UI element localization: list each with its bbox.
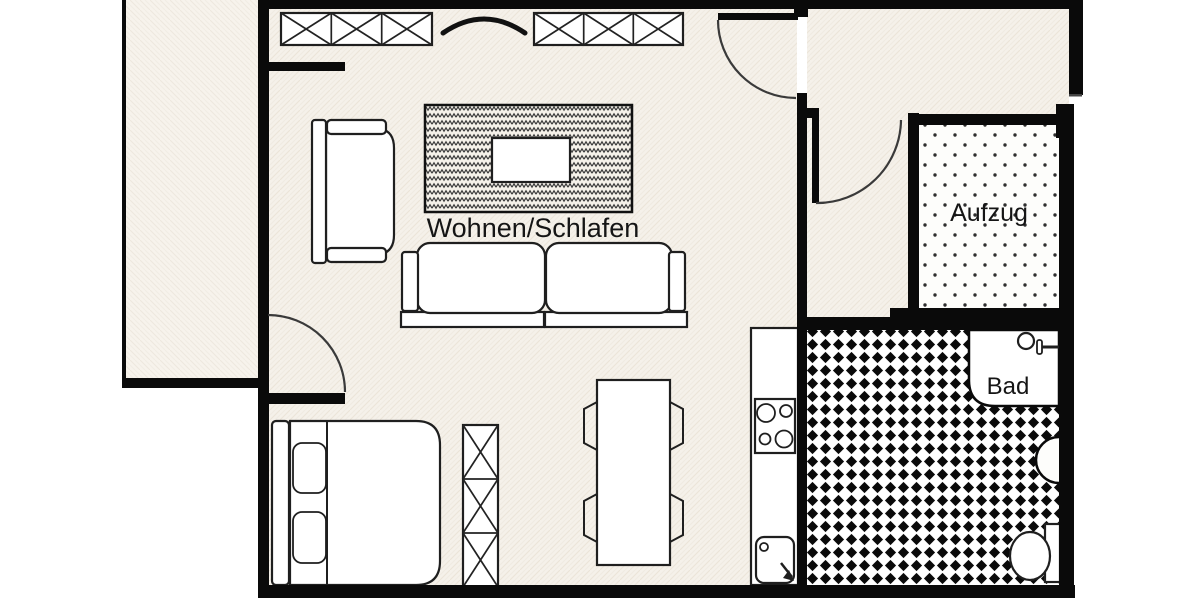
double-bed (272, 421, 440, 585)
sofa-armrest-left (402, 252, 418, 311)
sofa (401, 243, 687, 327)
wall-tick-right (1069, 94, 1082, 97)
elevator-label: Aufzug (950, 199, 1028, 227)
wall-bottom (258, 585, 1075, 598)
hall-strip-floor (807, 114, 908, 317)
bed-headboard (272, 421, 289, 585)
burner-small-2 (760, 434, 771, 445)
armchair-back (312, 120, 326, 263)
burner-large-2 (776, 431, 793, 448)
floor-plan-page: Wohnen/Schlafen Aufzug Bad (0, 0, 1200, 600)
entry-door-leaf (718, 13, 798, 20)
sofa-base-left (401, 312, 544, 327)
armchair-armrest-top (327, 120, 386, 134)
dining-set (584, 380, 683, 565)
sofa-armrest-right (669, 252, 685, 311)
wall-elevator-left (908, 113, 919, 323)
coffee-table (492, 138, 570, 182)
balcony-railing-bottom (122, 378, 262, 388)
kitchenette (751, 328, 798, 585)
wall-right-lower (1059, 104, 1074, 598)
wall-left (258, 0, 269, 598)
sofa-cushion-left (417, 243, 545, 313)
balcony-railing-left (122, 0, 126, 384)
toilet-bowl (1010, 532, 1050, 580)
bed-pillow-bottom (293, 512, 326, 563)
hall-floor (807, 9, 1069, 114)
floor-plan: Wohnen/Schlafen Aufzug Bad (0, 0, 1200, 600)
balcony-floor (126, 0, 258, 378)
armchair (312, 120, 394, 263)
burner-small-1 (780, 405, 792, 417)
living-room-label: Wohnen/Schlafen (427, 213, 640, 243)
sink-drain (760, 543, 768, 551)
wall-elevator-top (919, 114, 1059, 125)
washbasin (1018, 333, 1034, 349)
wall-living-hall-divider (797, 93, 807, 585)
wall-bathroom-top (797, 317, 1074, 330)
dining-table (597, 380, 670, 565)
sofa-cushion-right (546, 243, 672, 313)
wall-stub-bed (258, 393, 345, 404)
armchair-armrest-bottom (327, 248, 386, 262)
bathroom-label: Bad (987, 373, 1030, 400)
wall-stub-top-left (262, 62, 345, 71)
sofa-base-right (545, 312, 687, 327)
wall-top (258, 0, 1083, 9)
armchair-seat (326, 128, 394, 255)
burner-large-1 (757, 404, 775, 422)
wall-right-upper (1069, 0, 1083, 95)
radiator-window-1 (281, 13, 432, 45)
rug-with-coffee-table (425, 105, 632, 212)
radiator-window-2 (534, 13, 683, 45)
bed-pillow-top (293, 443, 326, 493)
hall-door-leaf (812, 116, 819, 203)
wardrobe-radiator (463, 425, 498, 587)
